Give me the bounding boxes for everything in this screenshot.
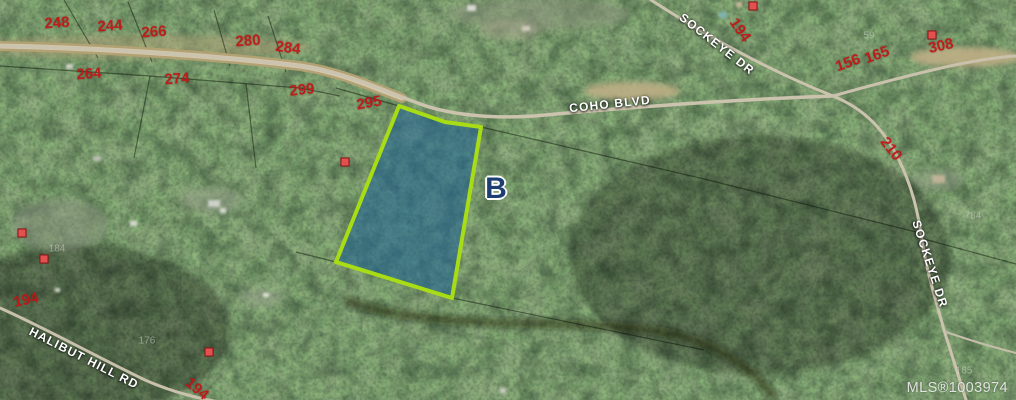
parcel-marker-b: B — [485, 174, 507, 204]
house-marker-icon — [749, 2, 758, 11]
parcel-number-faint: 784 — [965, 211, 982, 222]
lot-number: 266 — [141, 23, 167, 42]
house-marker-icon — [341, 158, 350, 167]
lot-number: 244 — [97, 17, 123, 36]
house-marker-icon — [18, 229, 27, 238]
house-marker-icon — [928, 31, 937, 40]
lot-number: 248 — [44, 14, 70, 33]
parcel-number-faint: 59 — [863, 31, 874, 42]
house-marker-icon — [40, 255, 49, 264]
map-canvas[interactable]: B MLS®1003974 COHO BLVDSOCKEYE DRSOCKEYE… — [0, 0, 1016, 400]
lot-number: 280 — [235, 32, 261, 51]
house-marker-icon — [205, 348, 214, 357]
parcel-number-faint: 185 — [956, 366, 973, 377]
parcel-number-faint: 176 — [139, 336, 156, 347]
mls-watermark: MLS®1003974 — [907, 380, 1008, 396]
lot-number: 299 — [289, 80, 316, 100]
parcel-number-faint: 184 — [49, 244, 66, 255]
lot-number: 264 — [76, 65, 102, 84]
lot-number: 284 — [274, 38, 301, 58]
lot-number: 274 — [164, 70, 190, 89]
